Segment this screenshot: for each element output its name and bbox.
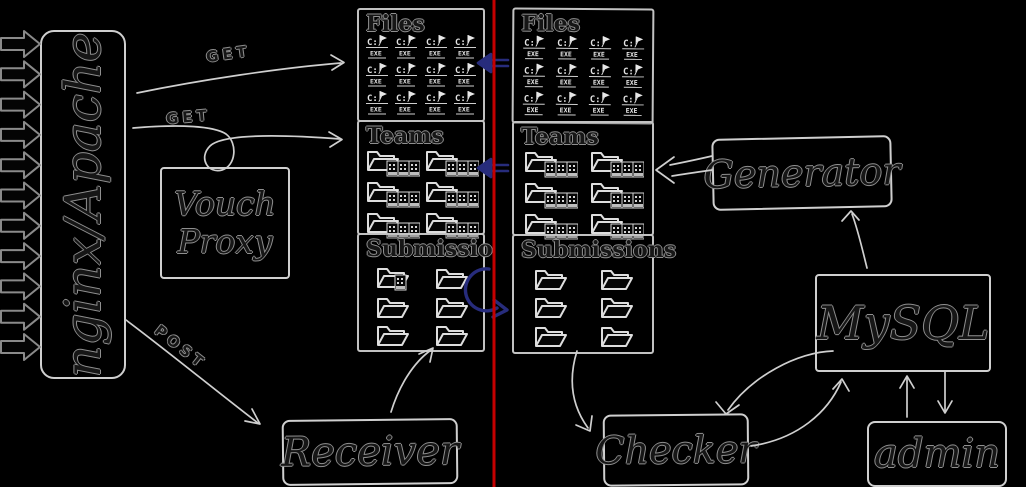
panel-right-files: Files C:/EXEC:/EXEC:/EXEC:/EXEC:/EXEC:/E… — [512, 8, 655, 125]
folder-icon — [600, 265, 634, 292]
node-mysql-label: MySQL — [817, 296, 990, 350]
svg-text:C:/: C:/ — [589, 67, 605, 77]
svg-text:EXE: EXE — [429, 77, 441, 85]
exe-icon: C:/EXE — [454, 35, 478, 62]
team-icon — [524, 147, 578, 178]
exe-icon: C:/EXE — [588, 92, 612, 119]
svg-text:C:/: C:/ — [523, 67, 539, 77]
svg-text:C:/: C:/ — [367, 38, 383, 48]
panel-right-submissions-grid — [518, 264, 650, 350]
svg-text:C:/: C:/ — [623, 39, 639, 49]
folder-icon — [534, 265, 568, 292]
node-receiver: Receiver — [282, 418, 459, 486]
svg-text:EXE: EXE — [458, 49, 470, 57]
svg-text:EXE: EXE — [458, 105, 470, 113]
folder-icon — [600, 322, 634, 349]
folder-icon — [435, 321, 469, 348]
svg-text:EXE: EXE — [527, 50, 539, 58]
svg-text:EXE: EXE — [526, 106, 538, 114]
svg-text:C:/: C:/ — [622, 96, 638, 106]
svg-text:C:/: C:/ — [556, 67, 572, 77]
folder-icon — [376, 321, 410, 348]
svg-text:C:/: C:/ — [590, 39, 606, 49]
panel-right-submissions: Submissions — [512, 234, 654, 354]
team-icon — [590, 178, 644, 209]
exe-icon: C:/EXE — [366, 35, 390, 62]
folder-icon — [534, 293, 568, 320]
svg-text:EXE: EXE — [370, 49, 382, 57]
exe-icon: C:/EXE — [621, 93, 645, 120]
node-vouch-proxy: Vouch Proxy — [160, 167, 290, 279]
node-admin: admin — [867, 421, 1007, 487]
node-vouch-proxy-label: Vouch Proxy — [170, 185, 280, 261]
exe-icon: C:/EXE — [395, 91, 419, 118]
panel-left-files: Files C:/EXEC:/EXEC:/EXEC:/EXEC:/EXEC:/E… — [357, 8, 485, 122]
exe-icon: C:/EXE — [523, 35, 547, 62]
svg-text:C:/: C:/ — [367, 66, 383, 76]
svg-text:EXE: EXE — [370, 105, 382, 113]
node-checker: Checker — [603, 413, 750, 486]
exe-icon: C:/EXE — [522, 92, 546, 119]
panel-left-teams: Teams — [357, 120, 485, 235]
exe-icon: C:/EXE — [366, 63, 390, 90]
exe-icon: C:/EXE — [555, 92, 579, 119]
svg-text:EXE: EXE — [526, 78, 538, 86]
svg-text:C:/: C:/ — [396, 94, 412, 104]
node-generator-label: Generator — [703, 149, 901, 197]
svg-text:C:/: C:/ — [589, 95, 605, 105]
exe-icon: C:/EXE — [425, 35, 449, 62]
svg-text:EXE: EXE — [560, 50, 572, 58]
panel-left-submissions: Submissio — [357, 233, 485, 352]
svg-text:C:/: C:/ — [455, 66, 471, 76]
svg-text:EXE: EXE — [593, 50, 605, 58]
exe-icon: C:/EXE — [454, 63, 478, 90]
panel-right-files-title: Files — [521, 11, 580, 37]
exe-icon: C:/EXE — [555, 64, 579, 91]
svg-text:C:/: C:/ — [622, 67, 638, 77]
exe-icon: C:/EXE — [622, 36, 646, 63]
svg-text:EXE: EXE — [399, 77, 411, 85]
node-checker-label: Checker — [595, 427, 756, 472]
svg-text:C:/: C:/ — [426, 66, 442, 76]
svg-text:C:/: C:/ — [426, 38, 442, 48]
edge-label-post: POST — [151, 321, 210, 373]
node-mysql: MySQL — [815, 274, 991, 372]
panel-left-submissions-title: Submissio — [366, 236, 493, 262]
exe-icon: C:/EXE — [556, 35, 580, 62]
panel-right-teams-grid — [518, 147, 650, 232]
svg-text:C:/: C:/ — [523, 95, 539, 105]
svg-text:C:/: C:/ — [396, 66, 412, 76]
edge-label-get-mid: GET — [165, 106, 211, 128]
team-icon — [590, 147, 644, 178]
exe-icon: C:/EXE — [621, 64, 645, 91]
svg-text:EXE: EXE — [592, 107, 604, 115]
svg-text:C:/: C:/ — [524, 38, 540, 48]
svg-text:EXE: EXE — [625, 107, 637, 115]
panel-right-submissions-title: Submissions — [521, 237, 676, 263]
exe-icon: C:/EXE — [454, 91, 478, 118]
svg-text:EXE: EXE — [559, 107, 571, 115]
exe-icon: C:/EXE — [522, 64, 546, 91]
svg-text:C:/: C:/ — [455, 94, 471, 104]
svg-text:C:/: C:/ — [426, 94, 442, 104]
folder-file-icon — [376, 263, 410, 292]
folder-icon — [435, 293, 469, 320]
folder-icon — [534, 322, 568, 349]
team-icon — [366, 177, 420, 208]
team-icon — [366, 146, 420, 177]
svg-text:C:/: C:/ — [396, 38, 412, 48]
svg-text:EXE: EXE — [626, 50, 638, 58]
folder-icon — [600, 293, 634, 320]
panel-left-submissions-grid — [363, 262, 481, 348]
svg-text:EXE: EXE — [429, 105, 441, 113]
node-admin-label: admin — [874, 431, 1000, 477]
panel-right-teams: Teams — [512, 121, 654, 236]
exe-icon: C:/EXE — [395, 63, 419, 90]
team-icon — [524, 178, 578, 209]
svg-text:EXE: EXE — [429, 49, 441, 57]
node-generator: Generator — [711, 135, 892, 211]
panel-left-teams-grid — [363, 146, 481, 231]
node-receiver-label: Receiver — [281, 428, 460, 476]
svg-text:C:/: C:/ — [556, 95, 572, 105]
node-nginx-apache: nginx/Apache — [40, 30, 126, 379]
svg-text:EXE: EXE — [370, 77, 382, 85]
edge-label-get-top: GET — [205, 42, 252, 66]
exe-icon: C:/EXE — [395, 35, 419, 62]
node-nginx-apache-label: nginx/Apache — [54, 32, 112, 377]
team-icon — [425, 177, 479, 208]
svg-text:C:/: C:/ — [557, 38, 573, 48]
exe-icon: C:/EXE — [366, 91, 390, 118]
folder-icon — [376, 293, 410, 320]
svg-text:C:/: C:/ — [455, 38, 471, 48]
svg-text:EXE: EXE — [559, 78, 571, 86]
folder-icon — [435, 264, 469, 291]
svg-text:EXE: EXE — [399, 49, 411, 57]
exe-icon: C:/EXE — [589, 36, 613, 63]
svg-text:EXE: EXE — [625, 79, 637, 87]
svg-text:C:/: C:/ — [367, 94, 383, 104]
panel-left-files-grid: C:/EXEC:/EXEC:/EXEC:/EXEC:/EXEC:/EXEC:/E… — [363, 34, 481, 118]
svg-text:EXE: EXE — [592, 79, 604, 87]
exe-icon: C:/EXE — [425, 63, 449, 90]
svg-text:EXE: EXE — [458, 77, 470, 85]
panel-right-files-grid: C:/EXEC:/EXEC:/EXEC:/EXEC:/EXEC:/EXEC:/E… — [518, 35, 651, 121]
exe-icon: C:/EXE — [588, 64, 612, 91]
svg-text:EXE: EXE — [399, 105, 411, 113]
diagram-canvas: nginx/Apache Vouch Proxy Receiver Genera… — [0, 0, 1026, 487]
exe-icon: C:/EXE — [425, 91, 449, 118]
team-icon — [425, 146, 479, 177]
